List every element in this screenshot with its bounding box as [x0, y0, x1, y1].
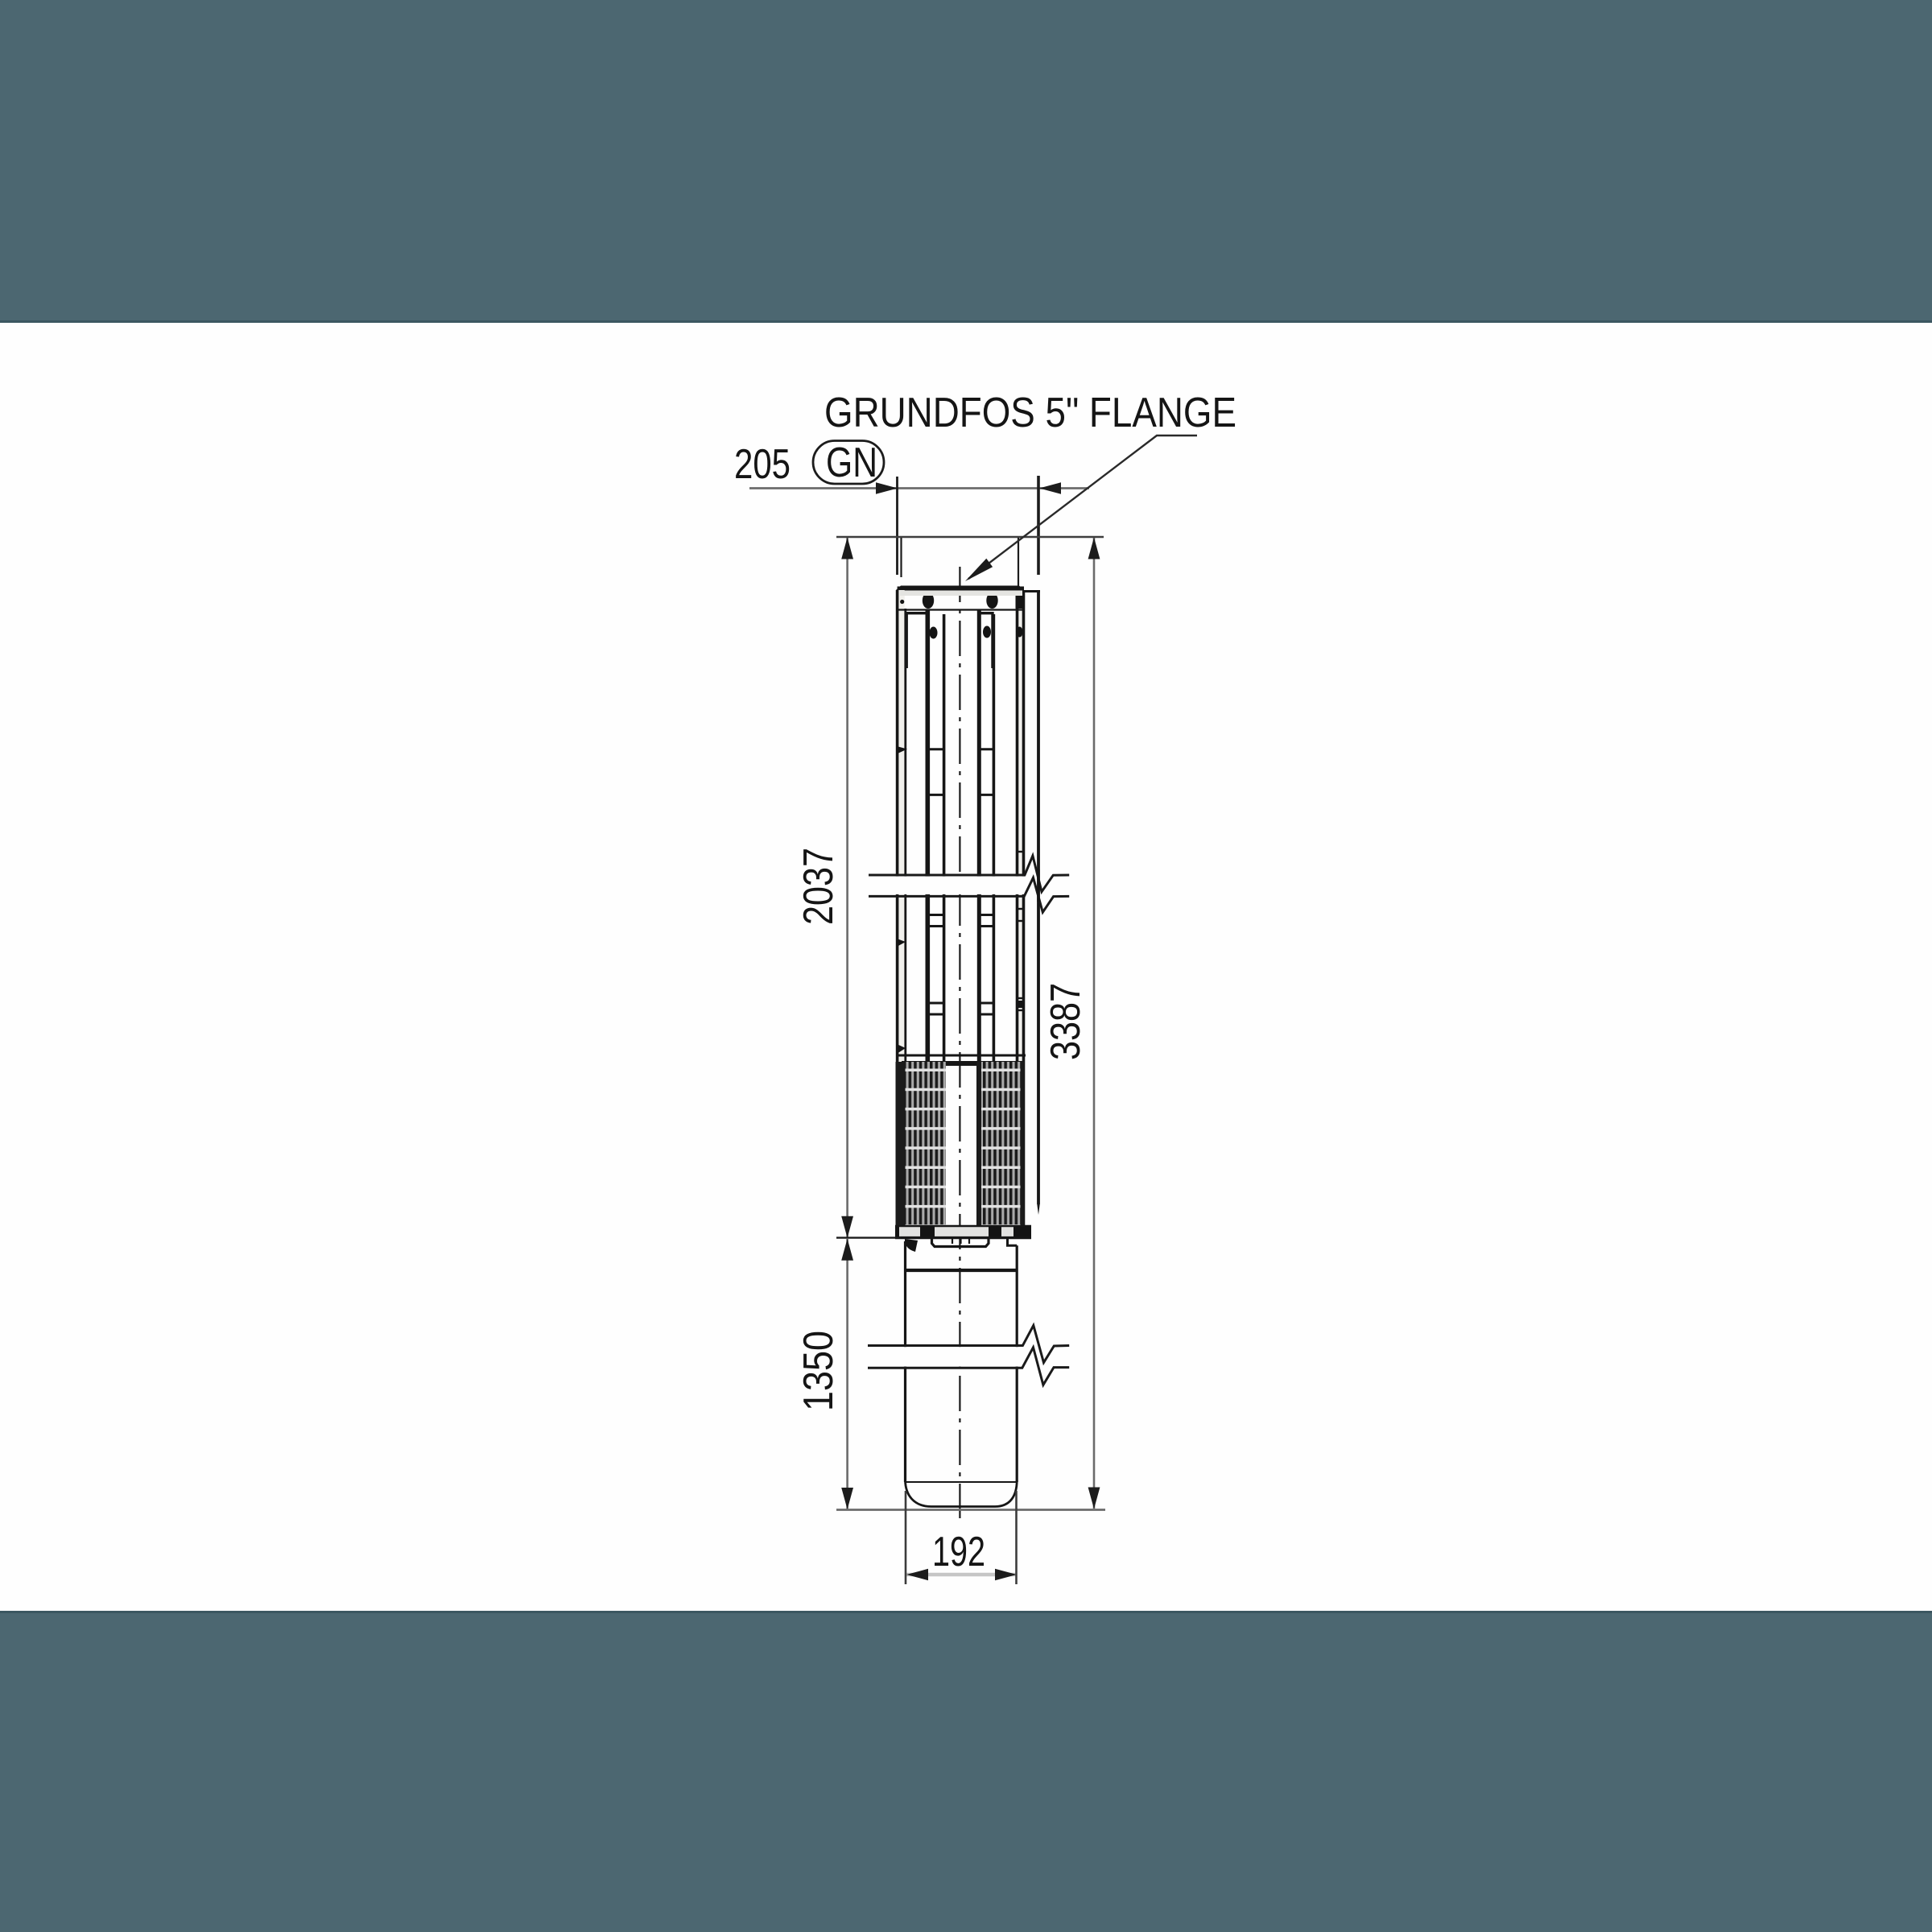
- svg-text:3387: 3387: [1042, 983, 1089, 1060]
- svg-text:2037: 2037: [795, 848, 842, 925]
- svg-text:1350: 1350: [795, 1331, 842, 1411]
- svg-text:205: 205: [734, 441, 791, 488]
- svg-text:GN: GN: [826, 440, 877, 486]
- svg-text:192: 192: [932, 1529, 985, 1575]
- svg-text:GRUNDFOS 5" FLANGE: GRUNDFOS 5" FLANGE: [824, 390, 1236, 436]
